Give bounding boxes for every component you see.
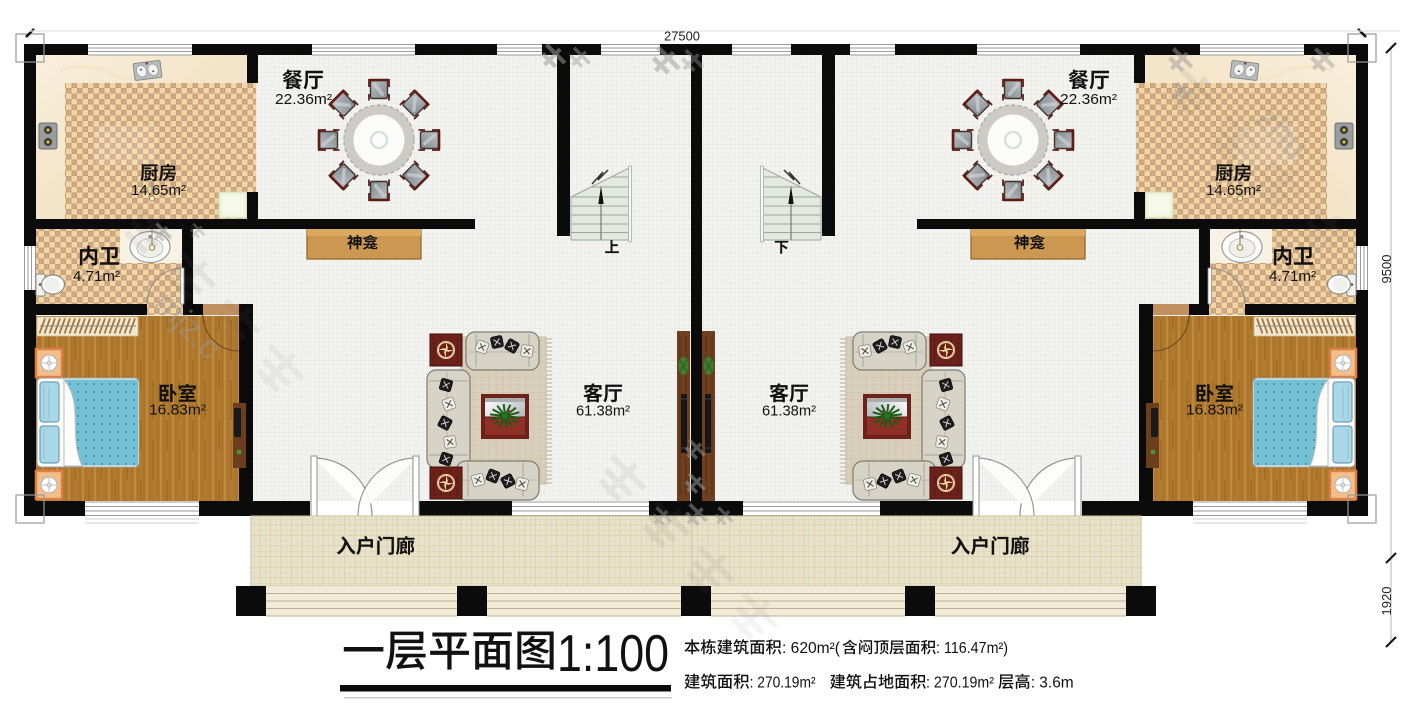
svg-text:61.38m²: 61.38m²: [762, 404, 816, 420]
svg-text:: 620m²(: : 620m²(: [782, 640, 841, 657]
svg-text:: 270.19m²: : 270.19m²: [926, 675, 994, 692]
svg-text:61.38m²: 61.38m²: [576, 404, 630, 420]
svg-text:1:100: 1:100: [557, 625, 669, 683]
svg-text:4.71m²: 4.71m²: [73, 269, 120, 285]
svg-text:9500: 9500: [1379, 255, 1394, 284]
svg-text:22.36m²: 22.36m²: [275, 92, 332, 108]
svg-text:16.83m²: 16.83m²: [149, 403, 206, 419]
svg-text:14.65m²: 14.65m²: [1206, 183, 1261, 199]
svg-text:27500: 27500: [664, 30, 700, 44]
svg-text:: 116.47m²): : 116.47m²): [936, 640, 1008, 657]
svg-text:22.36m²: 22.36m²: [1060, 92, 1117, 108]
svg-text:4.71m²: 4.71m²: [1269, 269, 1316, 285]
svg-text:: 270.19m²: : 270.19m²: [750, 675, 816, 692]
svg-text:14.65m²: 14.65m²: [131, 183, 186, 199]
svg-text:16.83m²: 16.83m²: [1186, 403, 1243, 419]
svg-text:1920: 1920: [1379, 587, 1394, 616]
svg-text:: 3.6m: : 3.6m: [1031, 675, 1074, 692]
